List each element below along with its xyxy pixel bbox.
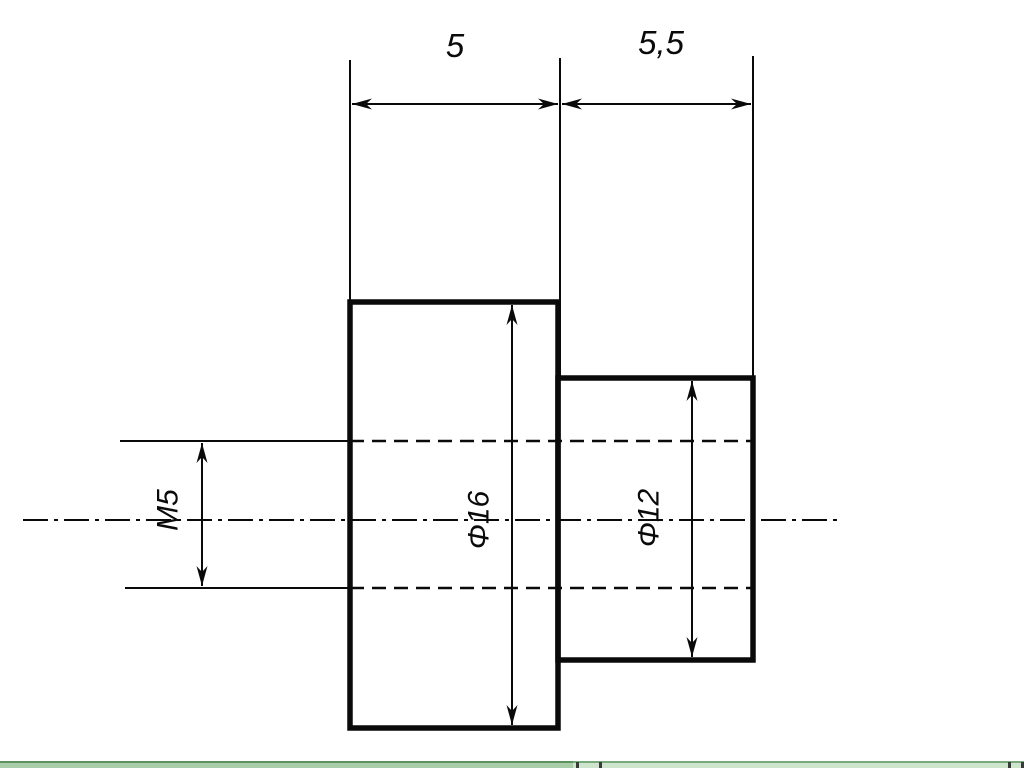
dimension-arrowheads	[197, 99, 752, 726]
dimension-label-thread: M5	[152, 489, 185, 531]
scrollbar-tick	[576, 762, 579, 768]
dimension-label-diameter-small: Φ12	[633, 488, 666, 547]
dimension-lines	[202, 104, 751, 725]
horizontal-scrollbar-thumb[interactable]	[0, 761, 573, 768]
drawing-page: 5 5,5 M5 Φ16 Φ12	[0, 0, 1024, 768]
scrollbar-tick	[1008, 762, 1011, 768]
horizontal-scrollbar-track[interactable]	[0, 761, 1024, 768]
dimension-label-diameter-large: Φ16	[463, 490, 496, 549]
drawing-canvas: 5 5,5 M5 Φ16 Φ12	[0, 0, 1024, 768]
dimension-label-length-small: 5,5	[638, 24, 685, 61]
part-body-large	[350, 302, 558, 728]
scrollbar-tick	[599, 762, 602, 768]
dimension-label-length-large: 5	[446, 27, 465, 64]
